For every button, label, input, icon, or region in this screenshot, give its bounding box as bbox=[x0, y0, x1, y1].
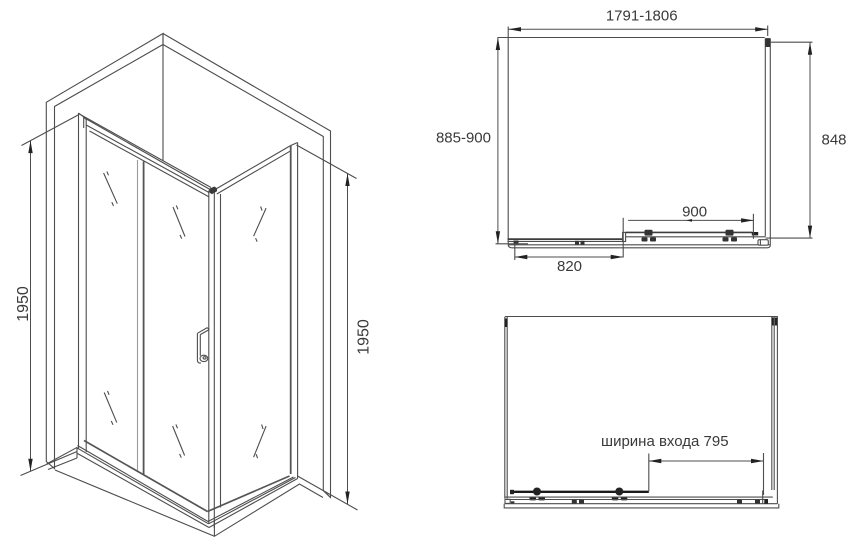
svg-text:848: 848 bbox=[822, 132, 847, 149]
svg-text:1950: 1950 bbox=[356, 319, 373, 355]
svg-text:885-900: 885-900 bbox=[436, 130, 491, 147]
svg-text:820: 820 bbox=[557, 258, 582, 275]
svg-text:1791-1806: 1791-1806 bbox=[606, 8, 678, 25]
svg-text:ширина входа 795: ширина входа 795 bbox=[601, 433, 729, 450]
svg-text:1950: 1950 bbox=[15, 286, 32, 322]
svg-text:900: 900 bbox=[682, 204, 707, 221]
